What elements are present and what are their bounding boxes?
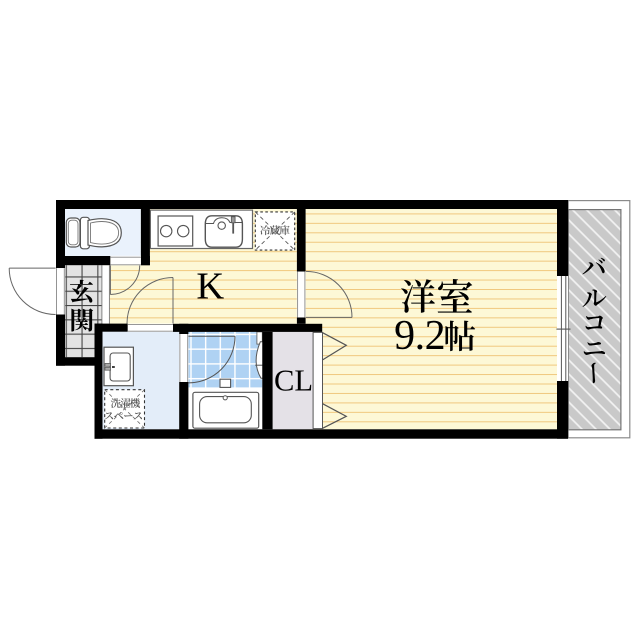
svg-text:CL: CL bbox=[274, 364, 313, 398]
svg-text:9.2: 9.2 bbox=[394, 313, 445, 359]
svg-text:K: K bbox=[196, 265, 224, 307]
